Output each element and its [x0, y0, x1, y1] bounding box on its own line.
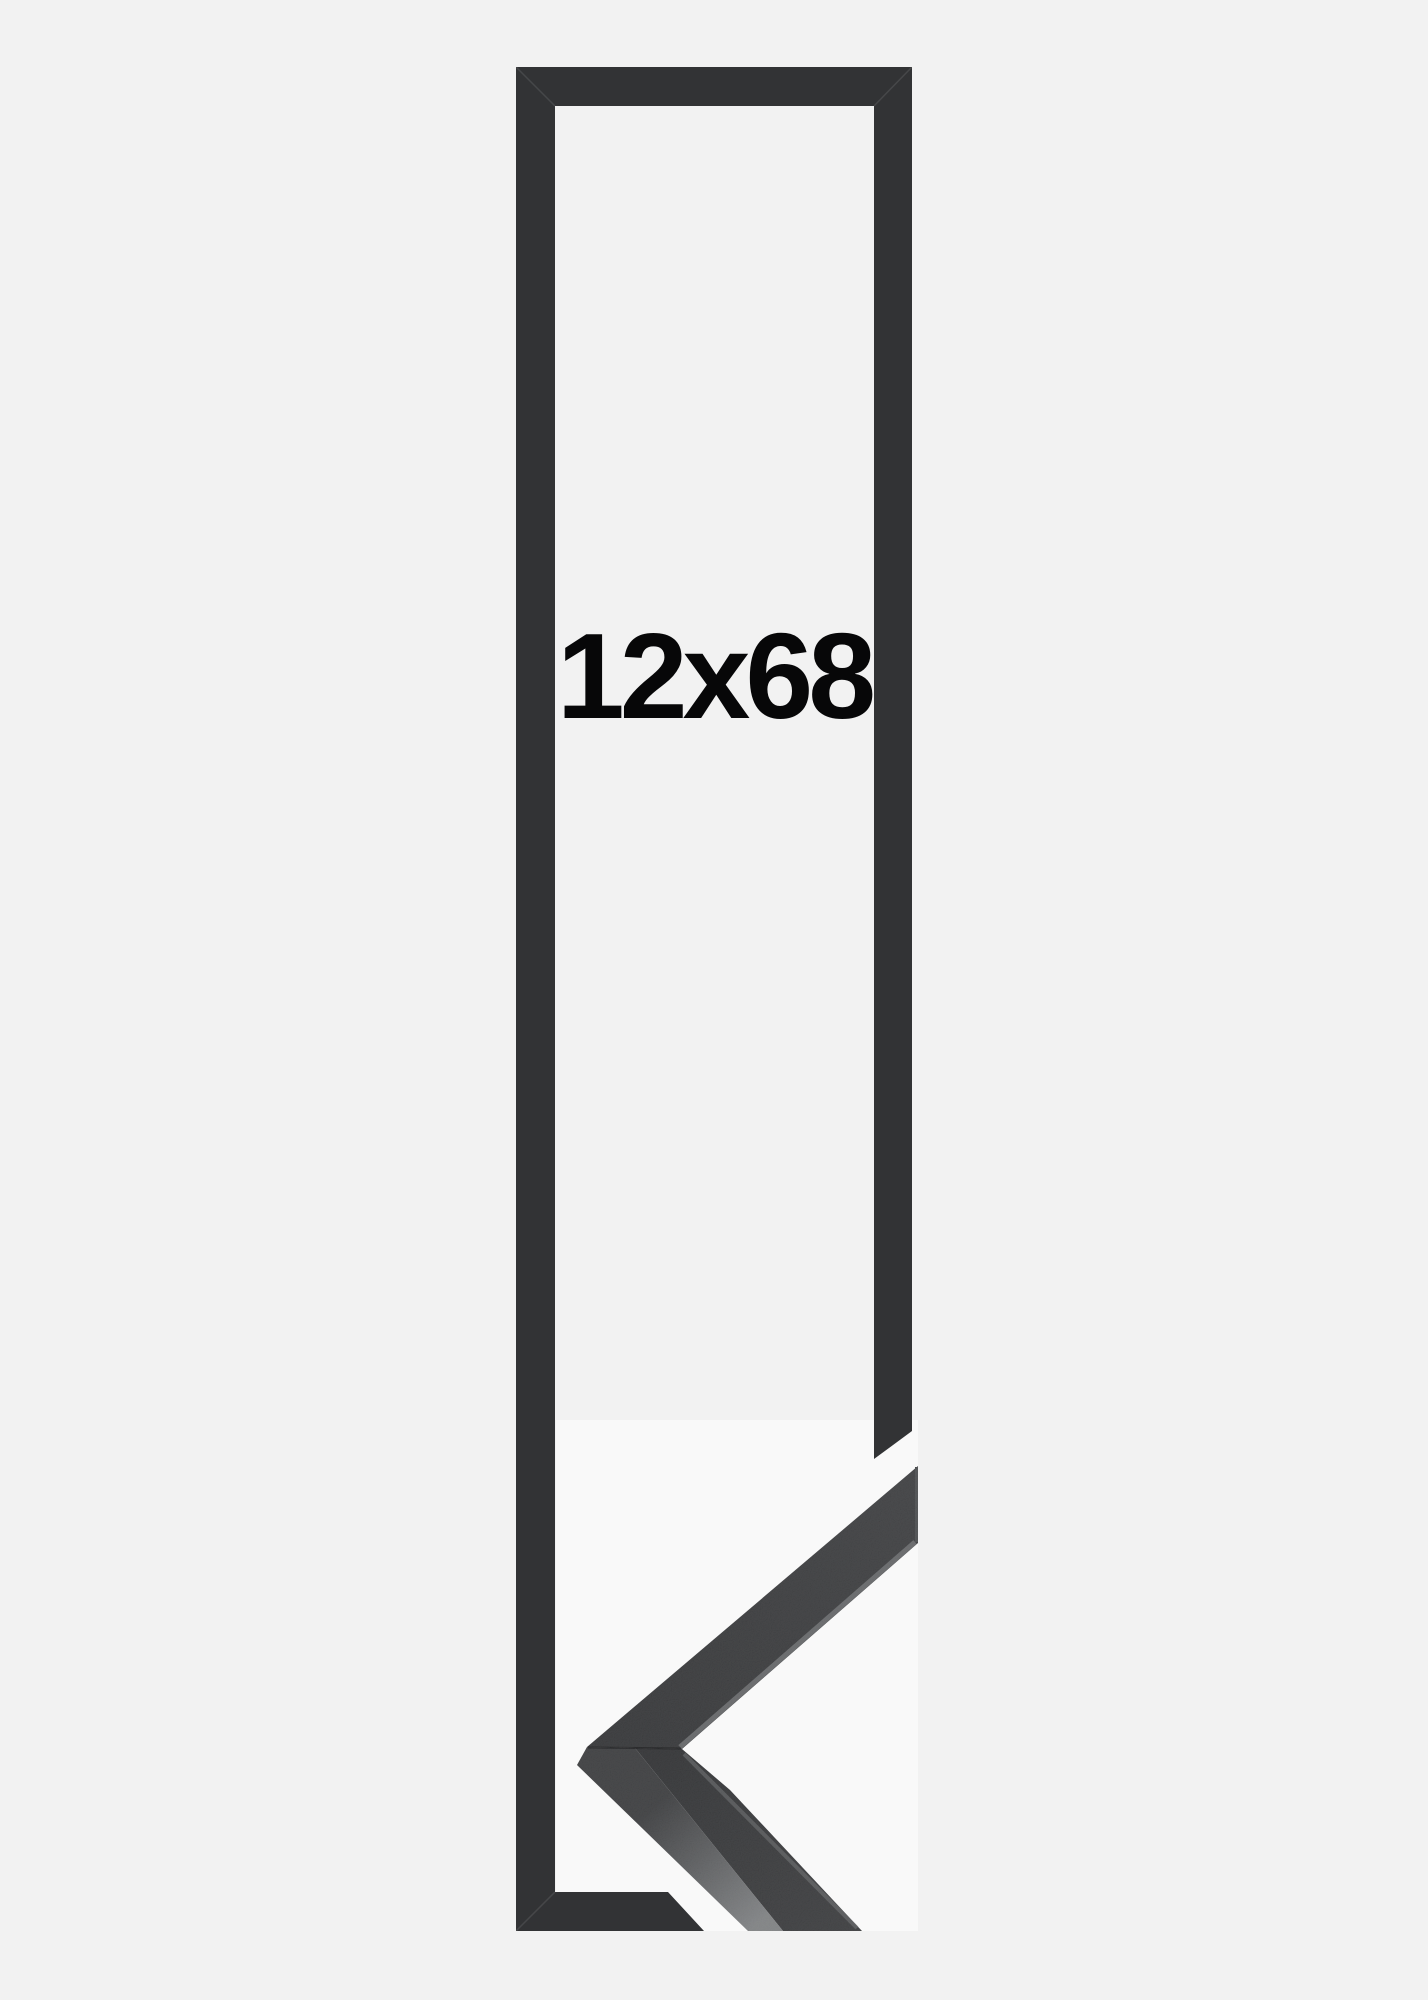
- frame-product-graphic: 12x68: [0, 0, 1428, 2000]
- size-label: 12x68: [557, 608, 873, 744]
- product-image: 12x68: [0, 0, 1428, 2000]
